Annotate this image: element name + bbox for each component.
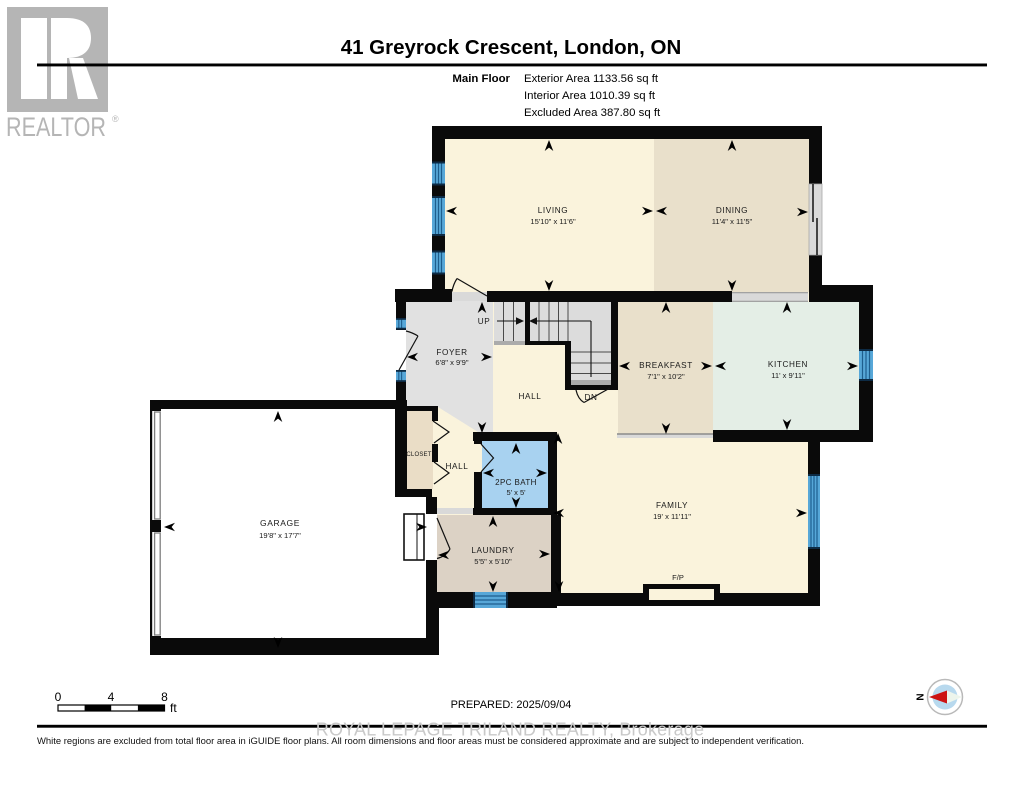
- svg-text:UP: UP: [478, 317, 491, 326]
- svg-text:BREAKFAST: BREAKFAST: [639, 361, 693, 370]
- svg-text:19'8" x 17'7": 19'8" x 17'7": [259, 531, 301, 540]
- svg-text:2PC BATH: 2PC BATH: [495, 478, 537, 487]
- svg-text:5' x 5': 5' x 5': [506, 488, 526, 497]
- svg-text:REALTOR: REALTOR: [6, 113, 106, 143]
- svg-text:F/P: F/P: [672, 573, 684, 582]
- svg-text:N: N: [916, 693, 927, 700]
- svg-text:FAMILY: FAMILY: [656, 501, 688, 510]
- svg-text:11' x 9'11": 11' x 9'11": [771, 371, 805, 380]
- svg-text:4: 4: [108, 690, 115, 704]
- svg-text:LAUNDRY: LAUNDRY: [471, 546, 514, 555]
- svg-text:HALL: HALL: [446, 462, 469, 471]
- svg-text:KITCHEN: KITCHEN: [768, 360, 808, 369]
- svg-text:0: 0: [55, 690, 62, 704]
- svg-text:PREPARED: 2025/09/04: PREPARED: 2025/09/04: [451, 699, 572, 711]
- svg-text:Main Floor: Main Floor: [452, 73, 510, 85]
- svg-text:HALL: HALL: [519, 392, 542, 401]
- svg-text:19' x 11'11": 19' x 11'11": [653, 512, 691, 521]
- svg-text:White regions are excluded fro: White regions are excluded from total fl…: [37, 736, 804, 747]
- svg-text:ft: ft: [170, 701, 177, 715]
- svg-text:7'1" x 10'2": 7'1" x 10'2": [647, 372, 685, 381]
- svg-text:5'5" x 5'10": 5'5" x 5'10": [474, 557, 512, 566]
- svg-text:Excluded Area 387.80 sq ft: Excluded Area 387.80 sq ft: [524, 107, 661, 119]
- svg-text:11'4" x 11'5": 11'4" x 11'5": [712, 217, 753, 226]
- svg-text:8: 8: [161, 690, 168, 704]
- svg-text:Exterior Area 1133.56 sq ft: Exterior Area 1133.56 sq ft: [524, 73, 659, 85]
- svg-text:CLOSET: CLOSET: [406, 452, 431, 458]
- svg-text:6'8" x 9'9": 6'8" x 9'9": [435, 358, 469, 367]
- svg-text:15'10" x 11'6": 15'10" x 11'6": [530, 217, 576, 226]
- svg-text:41 Greyrock Crescent, London,: 41 Greyrock Crescent, London, ON: [341, 36, 682, 59]
- svg-text:FOYER: FOYER: [436, 348, 467, 357]
- svg-text:LIVING: LIVING: [538, 206, 568, 215]
- svg-text:DINING: DINING: [716, 206, 748, 215]
- svg-text:®: ®: [112, 114, 119, 124]
- svg-text:Interior Area 1010.39 sq ft: Interior Area 1010.39 sq ft: [524, 90, 656, 102]
- svg-text:GARAGE: GARAGE: [260, 518, 300, 528]
- svg-text:DN: DN: [584, 393, 597, 402]
